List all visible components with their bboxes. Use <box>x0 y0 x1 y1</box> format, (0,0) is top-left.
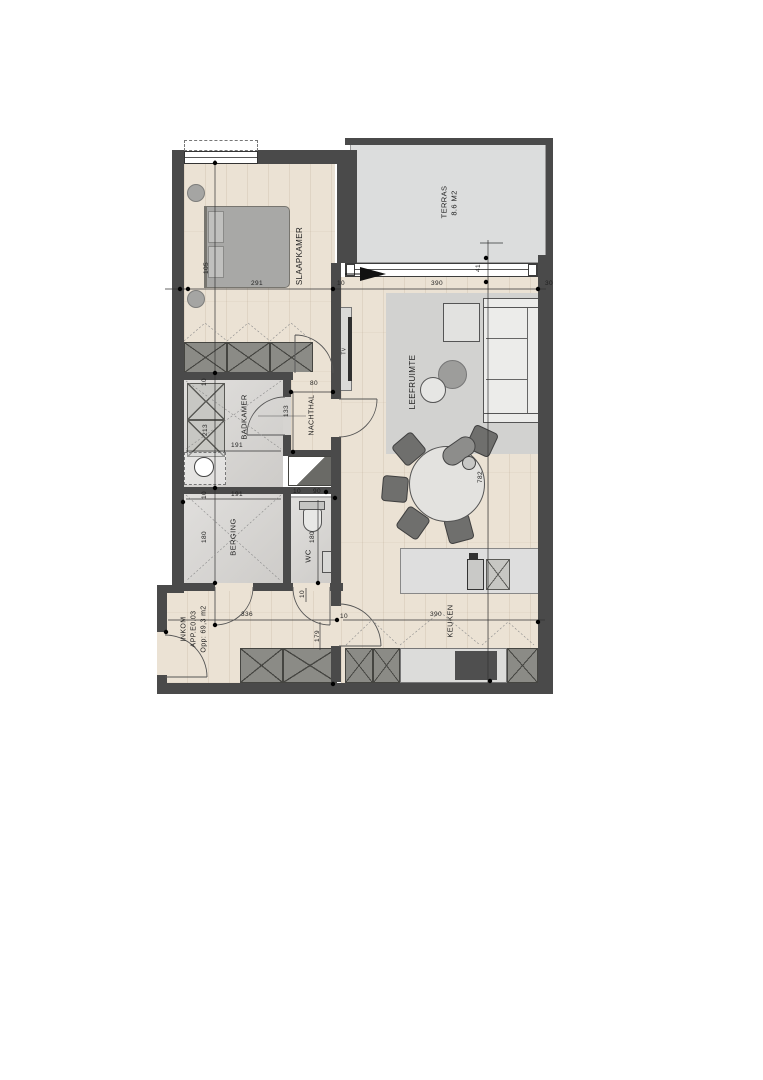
label-d10b: 10 <box>202 378 209 386</box>
label-d336: 336 <box>241 612 253 619</box>
person-head <box>462 456 476 470</box>
label-leefruimte: LEEFRUIMTE <box>409 355 417 410</box>
sofa-armrest <box>483 413 540 423</box>
floorplan-page: SLAAPKAMERTERRAS8.6 M2LEEFRUIMTEBADKAMER… <box>0 0 763 1080</box>
label-d291: 291 <box>251 281 263 288</box>
entry-door-opening <box>157 632 167 675</box>
label-d179: 179 <box>315 630 322 642</box>
sofa-cushion-line <box>486 338 528 339</box>
label-d782: 782 <box>478 471 485 483</box>
label-d105: 105 <box>204 262 211 274</box>
label-d191a: 191 <box>231 443 243 450</box>
wall <box>283 450 335 456</box>
label-terras-area: 8.6 M2 <box>450 190 458 215</box>
label-d390a: 390 <box>431 281 443 288</box>
label-d10d: 10 <box>293 489 301 496</box>
label-terras: TERRAS <box>440 186 448 219</box>
wardrobe-cabinet <box>184 342 227 373</box>
label-keuken: KEUKEN <box>446 604 454 637</box>
washbasin <box>194 457 214 477</box>
label-d133: 133 <box>284 405 291 417</box>
label-d41: 41 <box>476 264 483 272</box>
side-table <box>420 377 446 403</box>
label-d80: 80 <box>310 381 318 388</box>
label-d180a: 180 <box>202 531 209 543</box>
label-slaapkamer: SLAAPKAMER <box>296 227 304 285</box>
label-d10f: 10 <box>340 614 348 621</box>
label-inkom-area: Opp: 69,3 m2 <box>201 605 208 652</box>
wall <box>172 487 335 494</box>
kitchen-hob <box>486 559 510 590</box>
sliding-door-track <box>346 269 537 270</box>
sofa-back-line <box>527 300 528 421</box>
wall <box>157 683 553 694</box>
wall <box>538 255 553 694</box>
label-inkom: INKOM <box>181 617 188 642</box>
bottom-cabinet <box>283 648 337 683</box>
wall <box>337 150 357 263</box>
technical-shaft <box>288 456 334 486</box>
label-inkom-unit: APP.E0.03 <box>191 611 198 648</box>
label-d10c: 10 <box>202 491 209 499</box>
wardrobe-cabinet <box>227 342 270 373</box>
washing-machine <box>187 383 225 420</box>
terrace-rail <box>345 138 553 145</box>
label-nachthal: NACHTHAL <box>309 395 316 436</box>
sliding-door <box>345 263 538 277</box>
kitchen-faucet <box>469 553 478 559</box>
tv-screen <box>348 317 352 381</box>
window-glass-line <box>185 157 257 158</box>
sofa-armrest <box>483 298 540 308</box>
label-d90: 90 <box>313 489 321 496</box>
dining-chair <box>381 475 409 503</box>
wall <box>172 150 184 588</box>
pillow <box>208 211 224 243</box>
oven-appliance <box>455 651 497 680</box>
sliding-door-jamb <box>346 264 355 276</box>
window-shutter-box <box>184 140 258 151</box>
nightstand-lamp <box>187 184 205 202</box>
door-opening <box>215 583 253 591</box>
bottom-cabinet <box>240 648 283 683</box>
label-d30: 30 <box>545 281 553 288</box>
terrace-rail <box>546 144 553 258</box>
label-wc: WC <box>304 549 312 562</box>
label-badkamer: BADKAMER <box>240 394 248 439</box>
wardrobe-cabinet <box>270 342 313 373</box>
bottom-cabinet <box>373 648 400 683</box>
kitchen-sink <box>467 559 484 590</box>
bottom-cabinet <box>345 648 373 683</box>
sliding-door-jamb <box>528 264 537 276</box>
bottom-cabinet <box>507 648 538 683</box>
sofa <box>483 298 540 423</box>
sofa-cushion-line <box>486 379 528 380</box>
pillow <box>208 246 224 278</box>
label-d10a: 10 <box>337 281 345 288</box>
toilet-bowl <box>303 509 322 532</box>
nightstand-lamp <box>187 290 205 308</box>
door-opening <box>331 399 341 437</box>
label-d191b: 191 <box>231 492 243 499</box>
label-d180b: 180 <box>310 531 317 543</box>
label-berging: BERGING <box>229 518 237 555</box>
label-d10e: 10 <box>300 590 307 598</box>
label-d390b: 390 <box>430 612 442 619</box>
label-d213: 213 <box>203 424 210 436</box>
wall <box>283 494 291 583</box>
label-tv: TV <box>343 347 348 354</box>
coffee-table <box>443 303 480 342</box>
